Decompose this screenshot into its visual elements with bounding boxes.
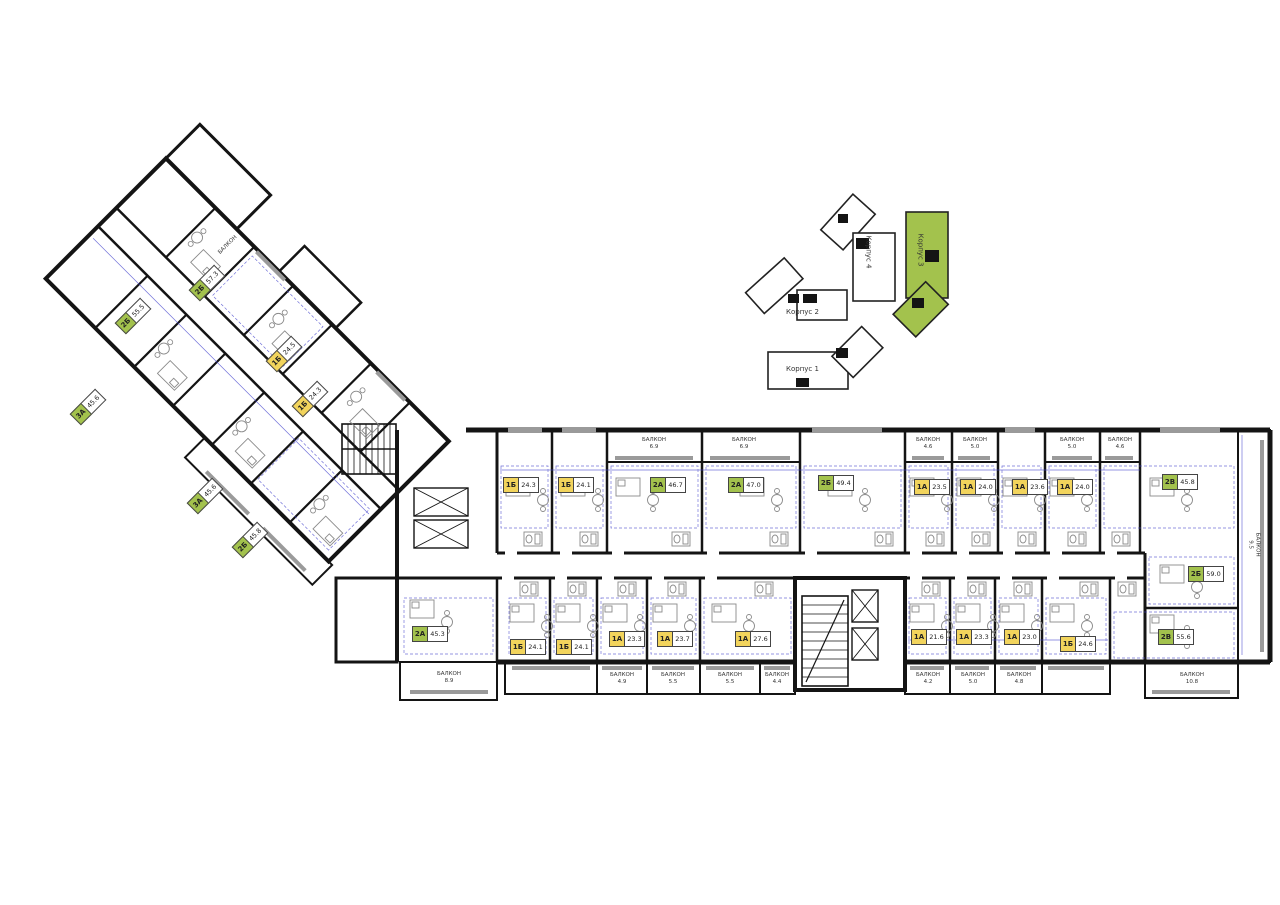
unit-area: 23.0	[1020, 629, 1040, 645]
balcony-label: БАЛКОН8.9	[427, 671, 471, 684]
unit-area: 23.3	[625, 631, 645, 647]
unit-area: 24.1	[526, 639, 546, 655]
unit-type: 1А	[609, 631, 625, 647]
unit-type: 2В	[1158, 629, 1174, 645]
unit-badge[interactable]: 3А45.6	[187, 478, 224, 515]
unit-area: 23.5	[930, 479, 950, 495]
balcony-label: БАЛКОН6.9	[722, 437, 766, 450]
unit-badge[interactable]: 1Б24.1	[558, 477, 594, 493]
unit-area: 24.6	[1076, 636, 1096, 652]
unit-area: 24.1	[574, 477, 594, 493]
balcony-label: БАЛКОН	[210, 227, 246, 263]
unit-badge[interactable]: 1А23.3	[609, 631, 645, 647]
balcony-label: БАЛКОН6.9	[632, 437, 676, 450]
site-label-korpus2[interactable]: Корпус 2	[786, 308, 819, 316]
unit-type: 2Б	[818, 475, 834, 491]
unit-badge[interactable]: 1А24.0	[1057, 479, 1093, 495]
unit-area: 24.0	[976, 479, 996, 495]
unit-area: 47.0	[744, 477, 764, 493]
unit-badge[interactable]: 2Б45.8	[232, 522, 269, 559]
unit-type: 1А	[1057, 479, 1073, 495]
site-label-korpus3[interactable]: Корпус 3	[916, 234, 924, 267]
unit-type: 1Б	[503, 477, 519, 493]
unit-area: 21.6	[927, 629, 947, 645]
unit-area: 24.0	[1073, 479, 1093, 495]
unit-badge[interactable]: 2В45.8	[1162, 474, 1198, 490]
unit-badge[interactable]: 1А24.0	[960, 479, 996, 495]
unit-type: 1А	[1004, 629, 1020, 645]
unit-area: 23.6	[1028, 479, 1048, 495]
unit-area: 55.6	[1174, 629, 1194, 645]
unit-badge[interactable]: 3А45.6	[70, 389, 107, 426]
site-label-korpus4[interactable]: Корпус 4	[864, 236, 872, 269]
unit-badge[interactable]: 1Б24.1	[510, 639, 546, 655]
balcony-label: БАЛКОН5.5	[708, 672, 752, 685]
site-label-korpus1[interactable]: Корпус 1	[786, 365, 819, 373]
unit-type: 2А	[728, 477, 744, 493]
unit-type: 1А	[1012, 479, 1028, 495]
unit-badge[interactable]: 1А23.3	[956, 629, 992, 645]
unit-type: 2Б	[1188, 566, 1204, 582]
unit-type: 1А	[911, 629, 927, 645]
unit-area: 24.3	[519, 477, 539, 493]
unit-type: 2В	[1162, 474, 1178, 490]
balcony-label: БАЛКОН9.5	[1247, 523, 1260, 567]
floorplan-page: 1Б24.3 1Б24.1 2А46.7 2А47.0 2Б49.4 1А23.…	[0, 0, 1280, 905]
unit-area: 46.7	[666, 477, 686, 493]
unit-badge[interactable]: 2Б55.5	[115, 298, 152, 335]
unit-area: 45.3	[428, 626, 448, 642]
unit-type: 1Б	[558, 477, 574, 493]
balcony-label: БАЛКОН4.9	[600, 672, 644, 685]
unit-area: 27.6	[751, 631, 771, 647]
unit-badge[interactable]: 2А47.0	[728, 477, 764, 493]
unit-type: 2А	[650, 477, 666, 493]
balcony-label: БАЛКОН5.0	[953, 437, 997, 450]
unit-type: 1А	[735, 631, 751, 647]
unit-area: 23.7	[673, 631, 693, 647]
unit-badge[interactable]: 1А21.6	[911, 629, 947, 645]
labels-overlay: 1Б24.3 1Б24.1 2А46.7 2А47.0 2Б49.4 1А23.…	[0, 0, 1280, 905]
unit-badge[interactable]: 1Б24.3	[503, 477, 539, 493]
unit-badge[interactable]: 2Б49.4	[818, 475, 854, 491]
balcony-label: БАЛКОН5.0	[1050, 437, 1094, 450]
unit-type: 1Б	[556, 639, 572, 655]
unit-badge[interactable]: 2Б57.3	[189, 265, 226, 302]
unit-type: 1А	[960, 479, 976, 495]
unit-type: 1Б	[510, 639, 526, 655]
unit-area: 59.0	[1204, 566, 1224, 582]
unit-type: 1А	[657, 631, 673, 647]
unit-badge[interactable]: 2В55.6	[1158, 629, 1194, 645]
unit-area: 45.8	[1178, 474, 1198, 490]
balcony-label: БАЛКОН5.5	[651, 672, 695, 685]
unit-badge[interactable]: 1А23.5	[914, 479, 950, 495]
unit-badge[interactable]: 1Б24.3	[292, 381, 329, 418]
balcony-label: БАЛКОН4.8	[997, 672, 1041, 685]
unit-badge[interactable]: 1Б24.1	[556, 639, 592, 655]
balcony-label: БАЛКОН10.8	[1170, 672, 1214, 685]
balcony-label: БАЛКОН5.0	[951, 672, 995, 685]
unit-badge[interactable]: 1Б24.6	[1060, 636, 1096, 652]
unit-badge[interactable]: 2А45.3	[412, 626, 448, 642]
unit-badge[interactable]: 1А27.6	[735, 631, 771, 647]
balcony-label: БАЛКОН4.4	[755, 672, 799, 685]
unit-badge[interactable]: 2Б59.0	[1188, 566, 1224, 582]
unit-badge[interactable]: 2А46.7	[650, 477, 686, 493]
balcony-label: БАЛКОН4.6	[906, 437, 950, 450]
unit-badge[interactable]: 1А23.7	[657, 631, 693, 647]
balcony-label: БАЛКОН4.2	[906, 672, 950, 685]
unit-badge[interactable]: 1Б24.5	[266, 336, 303, 373]
unit-type: 2А	[412, 626, 428, 642]
unit-area: 24.1	[572, 639, 592, 655]
balcony-label: БАЛКОН4.6	[1098, 437, 1142, 450]
unit-type: 1Б	[1060, 636, 1076, 652]
unit-badge[interactable]: 1А23.6	[1012, 479, 1048, 495]
unit-badge[interactable]: 1А23.0	[1004, 629, 1040, 645]
unit-type: 1А	[914, 479, 930, 495]
unit-area: 49.4	[834, 475, 854, 491]
unit-type: 1А	[956, 629, 972, 645]
unit-area: 23.3	[972, 629, 992, 645]
